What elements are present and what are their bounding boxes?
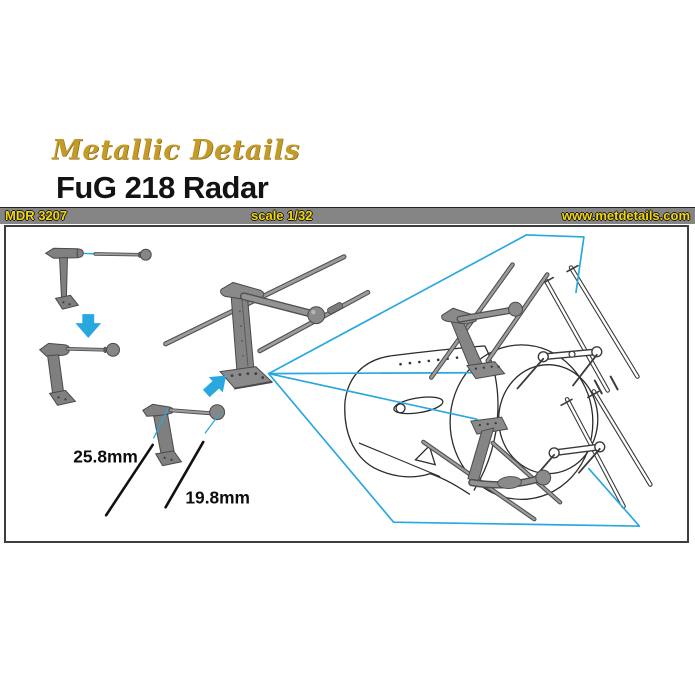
- measurement-label-25-8: 25.8mm: [73, 447, 138, 467]
- diagram-svg: 25.8mm 19.8mm: [6, 227, 687, 541]
- info-bar: MDR 3207 scale 1/32 www.metdetails.com: [0, 207, 695, 224]
- scale-label: scale 1/32: [251, 208, 312, 224]
- instruction-sheet: Metallic Details FuG 218 Radar MDR 3207 …: [0, 0, 695, 695]
- brand-logo: Metallic Details: [52, 135, 288, 166]
- page-title: FuG 218 Radar: [56, 170, 268, 206]
- diagram-box: 25.8mm 19.8mm: [4, 225, 689, 543]
- enlarged-antenna-part: [166, 257, 368, 389]
- website-text: www.metdetails.com: [562, 208, 690, 224]
- part-disassembled: [46, 248, 152, 309]
- part-assembled: [40, 343, 120, 405]
- measurement-label-19-8: 19.8mm: [185, 487, 250, 507]
- arrow-down-icon: [75, 314, 101, 338]
- product-code: MDR 3207: [5, 208, 67, 224]
